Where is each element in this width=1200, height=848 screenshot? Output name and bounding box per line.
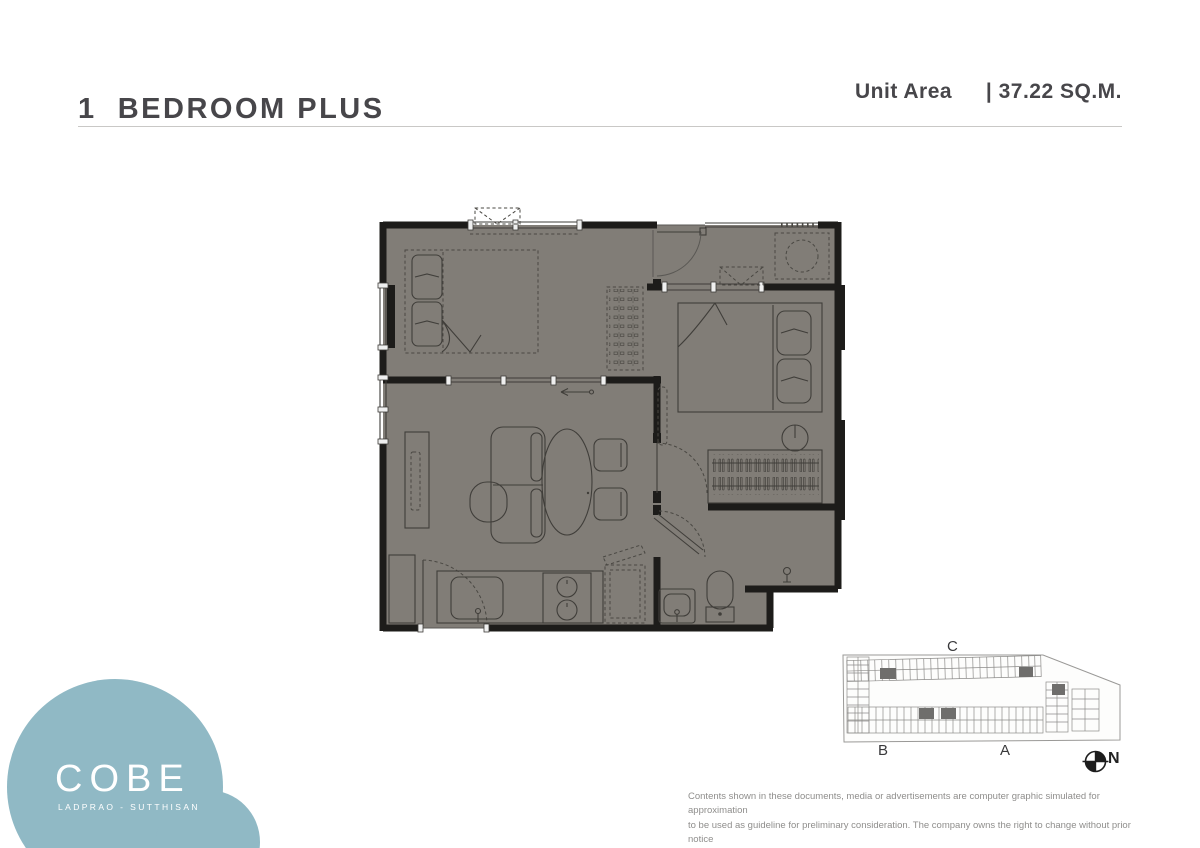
header-divider [78, 126, 1122, 127]
page-title: 1 BEDROOM PLUS [78, 93, 385, 126]
brand-logo: COBE LADPRAO - SUTTHISAN [0, 670, 270, 848]
brochure-page: 1 BEDROOM PLUS Unit Area | 37.22 SQ.M. [0, 0, 1200, 848]
unit-area-label: Unit Area [855, 80, 952, 104]
north-label: N [1108, 750, 1120, 768]
floorplan-drawing [375, 205, 845, 635]
disclaimer-line2: to be used as guideline for preliminary … [688, 819, 1133, 848]
brand-location: LADPRAO - SUTTHISAN [58, 802, 200, 812]
north-compass-icon [1082, 748, 1109, 775]
keyplan-drawing [835, 645, 1125, 750]
unit-area-value: | 37.22 SQ.M. [986, 80, 1122, 104]
disclaimer-line1: Contents shown in these documents, media… [688, 790, 1133, 819]
brand-name: COBE [55, 758, 191, 801]
keyplan-label-c: C [947, 638, 958, 655]
keyplan-label-a: A [1000, 742, 1011, 759]
disclaimer-text: Contents shown in these documents, media… [688, 790, 1133, 847]
keyplan-label-b: B [878, 742, 889, 759]
wardrobe1-icon [607, 287, 643, 370]
